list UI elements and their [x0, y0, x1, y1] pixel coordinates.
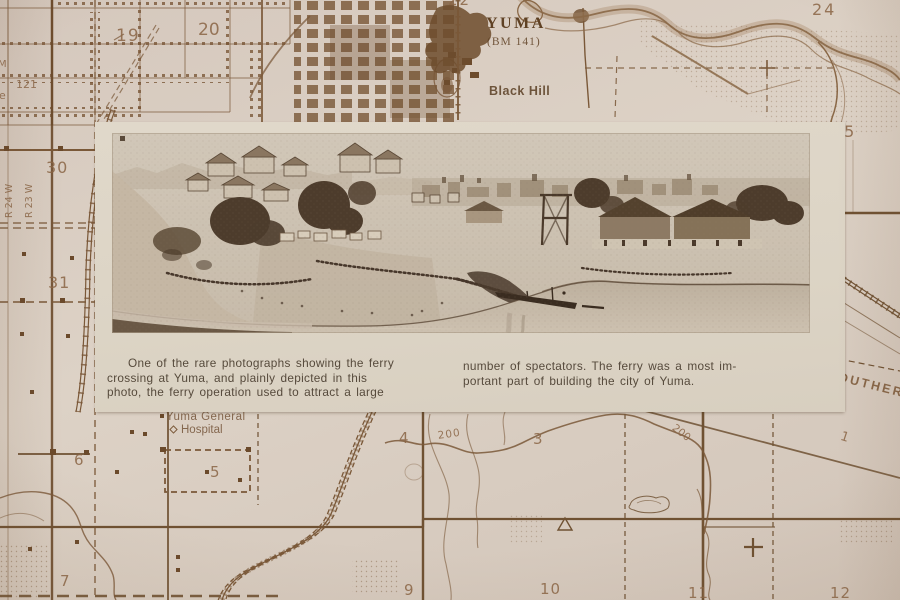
benchmark-label: (BM 141): [487, 36, 541, 48]
section-number-3: 3: [533, 430, 543, 448]
caption-right-column: number of spectators. The ferry was a mo…: [463, 359, 835, 388]
section-number-5: 5: [210, 463, 220, 481]
section-number-7: 7: [60, 572, 70, 590]
suburb-building-dots: [0, 1, 290, 122]
road-number-121: 121: [16, 78, 37, 91]
edge-fragment-e: e: [0, 89, 6, 102]
section-number-24: 24: [812, 0, 836, 19]
section-number-4: 4: [399, 429, 409, 447]
scanned-map-with-photo: 19 20 121 M e 22 24 25 30 31 R 24 W R 23…: [0, 0, 900, 600]
photo-caption: One of the rare photographs showing the …: [95, 356, 845, 410]
hospital-label-line2: Hospital: [181, 424, 223, 436]
section-number-31: 31: [48, 273, 70, 292]
section-number-11: 11: [688, 584, 709, 600]
caption-line: number of spectators. The ferry was a mo…: [463, 359, 835, 374]
caption-left-column: One of the rare photographs showing the …: [107, 356, 459, 400]
photo-grain-texture: [112, 133, 810, 333]
edge-fragment-m: M: [0, 59, 7, 70]
section-number-30: 30: [46, 158, 68, 177]
yuma-city-label: YUMA: [486, 15, 546, 33]
section-number-20: 20: [198, 20, 220, 40]
black-hill-label: Black Hill: [489, 84, 550, 98]
hospital-block: [28, 414, 251, 572]
range-label-r24w: R 24 W: [4, 184, 15, 218]
caption-line: One of the rare photographs showing the …: [107, 356, 459, 371]
section-number-9: 9: [404, 581, 414, 599]
hospital-label-line1: Yuma General: [166, 411, 246, 423]
left-section-lines: [0, 0, 95, 600]
caption-line: crossing at Yuma, and plainly depicted i…: [107, 371, 459, 386]
caption-line: photo, the ferry operation used to attra…: [107, 385, 459, 400]
section-number-12: 12: [830, 584, 851, 600]
section-number-10: 10: [540, 580, 561, 598]
map-symbols: [0, 496, 892, 600]
caption-line: portant part of building the city of Yum…: [463, 374, 835, 389]
section-number-22: 22: [448, 0, 471, 9]
section-number-19: 19: [116, 26, 140, 46]
range-label-r23w: R 23 W: [24, 184, 35, 218]
photo-clipping-card: One of the rare photographs showing the …: [95, 122, 845, 412]
ferry-photograph: [112, 133, 810, 333]
section-number-6: 6: [74, 451, 84, 469]
